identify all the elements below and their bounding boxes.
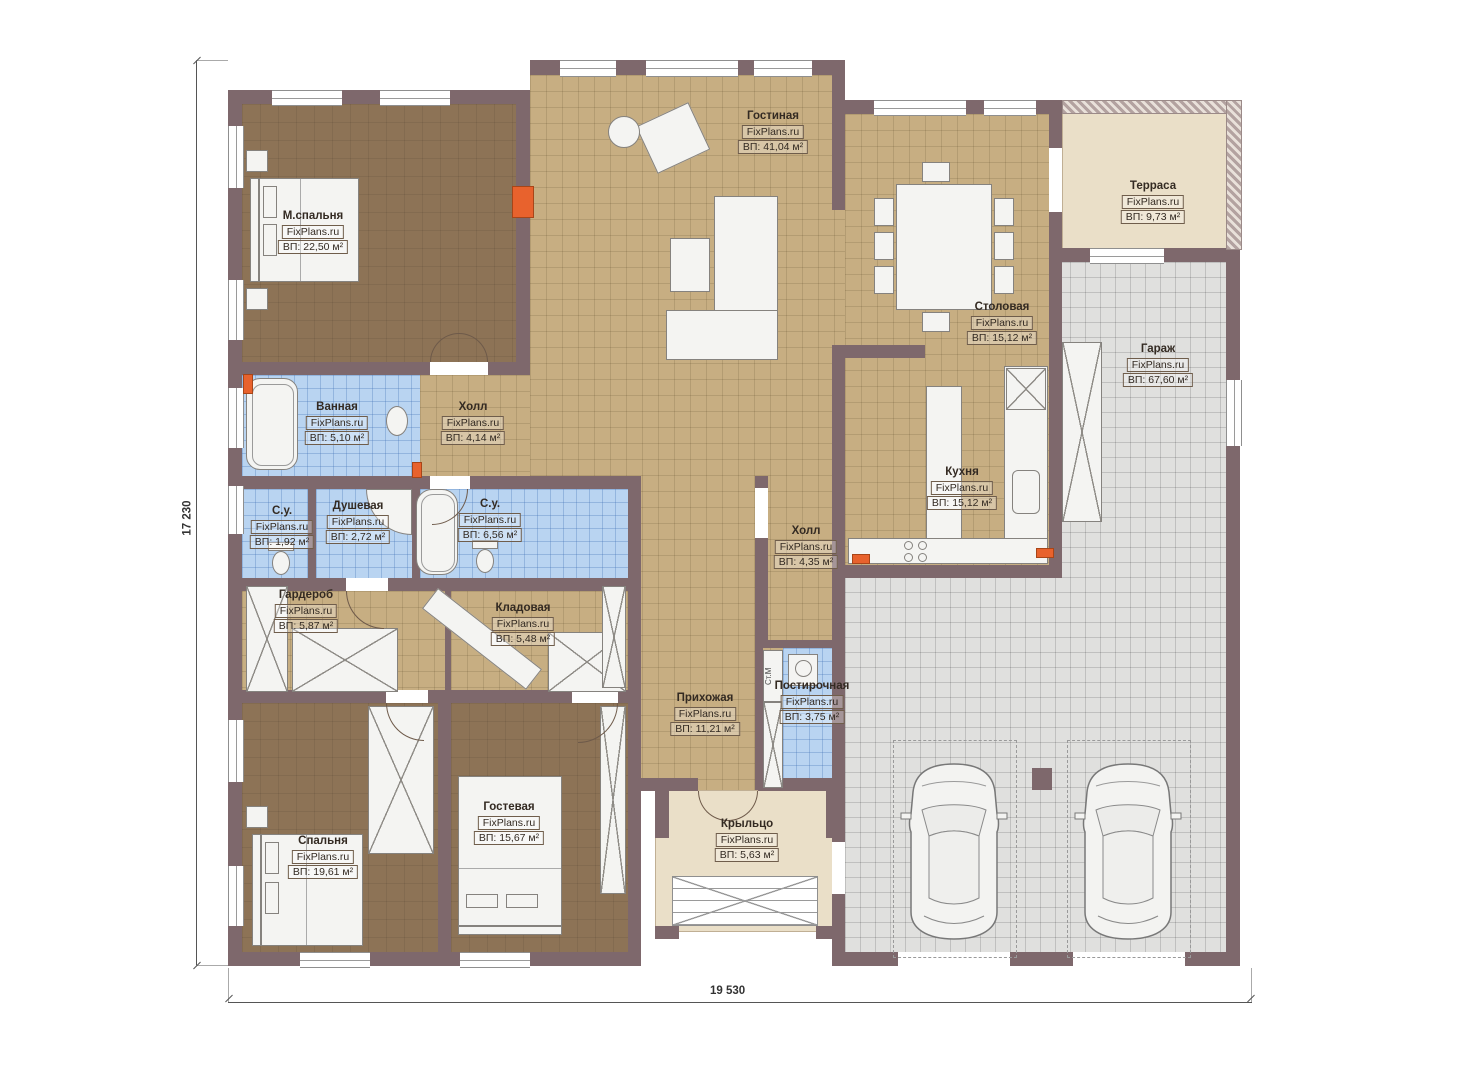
fridge xyxy=(1006,368,1046,410)
floor-plan: Ст.М 19 530 17 230 Гостиная FixPlans.ru xyxy=(0,0,1474,1080)
stove-burner xyxy=(918,553,927,562)
door-opening xyxy=(755,488,768,538)
room-name: Кухня xyxy=(927,466,997,480)
wall xyxy=(755,640,845,648)
room-name: С.у. xyxy=(250,505,314,519)
room-label-garage: Гараж FixPlans.ru ВП: 67,60 м² xyxy=(1123,343,1193,387)
wall xyxy=(755,648,763,790)
chair xyxy=(922,312,950,332)
brand-text: FixPlans.ru xyxy=(459,513,522,527)
room-name: М.спальня xyxy=(278,210,348,224)
room-label-storage: Кладовая FixPlans.ru ВП: 5,48 м² xyxy=(491,602,555,646)
room-label-hall2: Холл FixPlans.ru ВП: 4,35 м² xyxy=(774,525,838,569)
bed-headboard xyxy=(250,178,259,282)
room-area: ВП: 19,61 м² xyxy=(288,865,358,879)
window xyxy=(300,952,370,968)
room-name: Столовая xyxy=(967,301,1037,315)
room-name: Гараж xyxy=(1123,343,1193,357)
window xyxy=(228,126,244,188)
brand-text: FixPlans.ru xyxy=(781,695,844,709)
brand-text: FixPlans.ru xyxy=(292,850,355,864)
brand-text: FixPlans.ru xyxy=(492,617,555,631)
room-label-bathroom: Ванная FixPlans.ru ВП: 5,10 м² xyxy=(305,401,369,445)
bed-headboard xyxy=(252,834,261,946)
kitchen-counter xyxy=(848,538,1048,564)
brand-text: FixPlans.ru xyxy=(442,416,505,430)
bed-headboard xyxy=(458,926,562,935)
room-area: ВП: 22,50 м² xyxy=(278,240,348,254)
room-name: Спальня xyxy=(288,835,358,849)
car xyxy=(900,756,1008,948)
wall xyxy=(438,703,451,952)
room-label-kitchen: Кухня FixPlans.ru ВП: 15,12 м² xyxy=(927,466,997,510)
brand-text: FixPlans.ru xyxy=(742,125,805,139)
terrace-wall xyxy=(1062,100,1242,114)
kitchen-sink xyxy=(1012,470,1040,514)
window xyxy=(1226,380,1242,446)
room-label-bedroom2: Спальня FixPlans.ru ВП: 19,61 м² xyxy=(288,835,358,879)
window xyxy=(984,100,1036,116)
room-name: Кладовая xyxy=(491,602,555,616)
room-area: ВП: 11,21 м² xyxy=(670,722,740,736)
room-label-hall1: Холл FixPlans.ru ВП: 4,14 м² xyxy=(441,401,505,445)
chair xyxy=(874,266,894,294)
room-label-laundry: Постирочная FixPlans.ru ВП: 3,75 м² xyxy=(775,680,850,724)
sofa-chaise xyxy=(666,310,778,360)
chair xyxy=(994,266,1014,294)
room-label-wardrobe: Гардероб FixPlans.ru ВП: 5,87 м² xyxy=(274,589,338,633)
garage-rack xyxy=(1062,342,1102,522)
room-area: ВП: 15,12 м² xyxy=(967,331,1037,345)
dining-table xyxy=(896,184,992,310)
coffee-table xyxy=(670,238,710,292)
radiator xyxy=(243,374,253,394)
room-area: ВП: 1,92 м² xyxy=(250,535,314,549)
room-name: Прихожая xyxy=(670,692,740,706)
extension-line xyxy=(196,60,228,61)
room-name: Холл xyxy=(774,525,838,539)
room-label-dining: Столовая FixPlans.ru ВП: 15,12 м² xyxy=(967,301,1037,345)
room-area: ВП: 6,56 м² xyxy=(458,528,522,542)
sink xyxy=(386,406,408,436)
stove-burner xyxy=(918,541,927,550)
brand-text: FixPlans.ru xyxy=(282,225,345,239)
wall xyxy=(832,345,845,480)
room-label-terrace: Терраса FixPlans.ru ВП: 9,73 м² xyxy=(1121,180,1185,224)
room-area: ВП: 5,48 м² xyxy=(491,632,555,646)
stove-burner xyxy=(904,553,913,562)
room-label-guest: Гостевая FixPlans.ru ВП: 15,67 м² xyxy=(474,801,544,845)
room-area: ВП: 3,75 м² xyxy=(780,710,844,724)
room-label-shower: Душевая FixPlans.ru ВП: 2,72 м² xyxy=(326,500,390,544)
brand-text: FixPlans.ru xyxy=(306,416,369,430)
stove-burner xyxy=(904,541,913,550)
door-opening xyxy=(430,362,488,375)
room-name: Холл xyxy=(441,401,505,415)
closet xyxy=(600,706,626,894)
pillow xyxy=(466,894,498,908)
window xyxy=(646,60,738,77)
room-name: Гостевая xyxy=(474,801,544,815)
room-area: ВП: 67,60 м² xyxy=(1123,373,1193,387)
dimension-left: 17 230 xyxy=(182,500,194,535)
room-area: ВП: 2,72 м² xyxy=(326,530,390,544)
window xyxy=(560,60,616,77)
room-label-living: Гостиная FixPlans.ru ВП: 41,04 м² xyxy=(738,110,808,154)
door-opening xyxy=(430,476,470,489)
car xyxy=(1074,756,1182,948)
room-label-master-bedroom: М.спальня FixPlans.ru ВП: 22,50 м² xyxy=(278,210,348,254)
brand-text: FixPlans.ru xyxy=(478,816,541,830)
wall xyxy=(832,60,845,210)
room-name: Гостиная xyxy=(738,110,808,124)
room-area: ВП: 4,35 м² xyxy=(774,555,838,569)
porch-pier xyxy=(655,926,679,939)
wall xyxy=(845,345,925,358)
wall xyxy=(1226,248,1240,966)
porch-pier xyxy=(816,926,840,939)
room-name: С.у. xyxy=(458,498,522,512)
brand-text: FixPlans.ru xyxy=(971,316,1034,330)
dimension-line-left xyxy=(196,60,197,966)
radiator xyxy=(852,554,870,564)
brand-text: FixPlans.ru xyxy=(716,833,779,847)
room-name: Терраса xyxy=(1121,180,1185,194)
blanket-line xyxy=(459,868,561,869)
window xyxy=(272,90,342,106)
window xyxy=(228,720,244,782)
bathtub-inner xyxy=(252,384,294,466)
pillow xyxy=(263,186,277,218)
pillow xyxy=(506,894,538,908)
window xyxy=(228,388,244,448)
room-label-wc2: С.у. FixPlans.ru ВП: 6,56 м² xyxy=(458,498,522,542)
room-name: Ванная xyxy=(305,401,369,415)
room-area: ВП: 15,67 м² xyxy=(474,831,544,845)
nightstand xyxy=(246,806,268,828)
toilet xyxy=(476,549,494,573)
chair xyxy=(922,162,950,182)
brand-text: FixPlans.ru xyxy=(1127,358,1190,372)
chair xyxy=(874,232,894,260)
nightstand xyxy=(246,288,268,310)
chair xyxy=(874,198,894,226)
nightstand xyxy=(246,150,268,172)
room-area: ВП: 9,73 м² xyxy=(1121,210,1185,224)
radiator xyxy=(412,462,422,478)
wall xyxy=(228,952,641,966)
closet xyxy=(602,586,626,688)
room-area: ВП: 5,87 м² xyxy=(274,619,338,633)
room-area: ВП: 15,12 м² xyxy=(927,496,997,510)
brand-text: FixPlans.ru xyxy=(931,481,994,495)
garage-pillar xyxy=(1032,768,1052,790)
room-name: Гардероб xyxy=(274,589,338,603)
room-area: ВП: 41,04 м² xyxy=(738,140,808,154)
window xyxy=(380,90,450,106)
brand-text: FixPlans.ru xyxy=(327,515,390,529)
window xyxy=(460,952,530,968)
terrace-wall xyxy=(1226,100,1242,250)
closet xyxy=(292,628,398,692)
brand-text: FixPlans.ru xyxy=(775,540,838,554)
brand-text: FixPlans.ru xyxy=(275,604,338,618)
window xyxy=(1090,248,1164,264)
room-name: Душевая xyxy=(326,500,390,514)
side-table xyxy=(608,116,640,148)
toilet xyxy=(272,551,290,575)
pillow xyxy=(265,882,279,914)
brand-text: FixPlans.ru xyxy=(1122,195,1185,209)
pillow xyxy=(265,842,279,874)
fireplace xyxy=(512,186,534,218)
room-area: ВП: 5,10 м² xyxy=(305,431,369,445)
room-name: Крыльцо xyxy=(715,818,779,832)
dimension-line-bottom xyxy=(228,1002,1252,1003)
window xyxy=(228,866,244,926)
window xyxy=(754,60,812,77)
room-label-entry: Прихожая FixPlans.ru ВП: 11,21 м² xyxy=(670,692,740,736)
window xyxy=(228,280,244,340)
porch-pier xyxy=(655,778,669,838)
door-opening xyxy=(346,578,388,591)
door-opening xyxy=(1049,148,1062,212)
washer-drum xyxy=(795,660,812,677)
dimension-bottom: 19 530 xyxy=(710,985,745,997)
brand-text: FixPlans.ru xyxy=(674,707,737,721)
porch-steps xyxy=(672,876,818,926)
brand-text: FixPlans.ru xyxy=(251,520,314,534)
window xyxy=(228,486,244,534)
room-area: ВП: 4,14 м² xyxy=(441,431,505,445)
wall xyxy=(845,565,1062,578)
extension-line xyxy=(196,965,228,966)
room-name: Постирочная xyxy=(775,680,850,694)
pillow xyxy=(263,224,277,256)
wall xyxy=(628,476,641,952)
radiator xyxy=(1036,548,1054,558)
room-label-porch: Крыльцо FixPlans.ru ВП: 5,63 м² xyxy=(715,818,779,862)
room-area: ВП: 5,63 м² xyxy=(715,848,779,862)
porch-pier xyxy=(826,778,840,838)
door-opening xyxy=(832,842,845,894)
window xyxy=(874,100,966,116)
chair xyxy=(994,198,1014,226)
chair xyxy=(994,232,1014,260)
wall xyxy=(516,104,530,362)
room-label-wc1: С.у. FixPlans.ru ВП: 1,92 м² xyxy=(250,505,314,549)
